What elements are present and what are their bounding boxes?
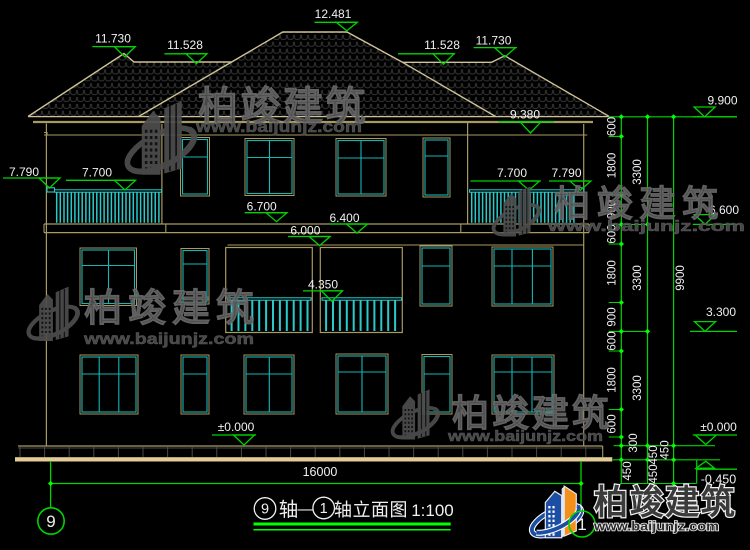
svg-text:900: 900: [607, 307, 619, 326]
svg-text:600: 600: [607, 331, 619, 350]
svg-text:www.baijunjz.com: www.baijunjz.com: [447, 428, 603, 445]
svg-text:11.730: 11.730: [95, 32, 131, 46]
svg-text:筑: 筑: [701, 484, 735, 522]
svg-text:3.300: 3.300: [706, 305, 736, 319]
svg-text:450: 450: [622, 461, 634, 480]
svg-text:轴: 轴: [279, 499, 299, 521]
svg-text:柏: 柏: [594, 484, 628, 522]
svg-text:竣: 竣: [630, 483, 664, 522]
svg-text:9.900: 9.900: [707, 94, 737, 108]
svg-text:7.790: 7.790: [9, 165, 39, 179]
svg-text:±0.000: ±0.000: [218, 420, 255, 434]
svg-text:6.700: 6.700: [247, 200, 277, 214]
svg-text:www.baijunjz.com: www.baijunjz.com: [195, 118, 362, 136]
svg-text:筑: 筑: [216, 288, 254, 330]
svg-text:9.380: 9.380: [510, 108, 540, 122]
svg-text:4.350: 4.350: [308, 278, 338, 292]
svg-text:450: 450: [660, 440, 672, 459]
svg-text:12.481: 12.481: [315, 7, 352, 21]
svg-text:6.000: 6.000: [290, 224, 320, 238]
svg-text:16000: 16000: [303, 465, 338, 479]
svg-text:1: 1: [577, 515, 586, 534]
svg-text:www.baijunjz.com: www.baijunjz.com: [546, 218, 745, 235]
svg-text:11.730: 11.730: [476, 34, 512, 48]
svg-text:300: 300: [628, 433, 640, 452]
svg-text:1: 1: [320, 501, 328, 517]
svg-text:1800: 1800: [607, 260, 619, 286]
svg-text:3300: 3300: [632, 159, 644, 185]
svg-text:450: 450: [648, 464, 660, 483]
svg-text:轴立面图: 轴立面图: [334, 500, 408, 520]
svg-text:3300: 3300: [632, 265, 644, 291]
svg-text:9: 9: [261, 502, 269, 518]
svg-text:www.baijunjz.com: www.baijunjz.com: [83, 331, 254, 348]
svg-text:—: —: [298, 501, 314, 518]
svg-text:7.700: 7.700: [82, 166, 112, 180]
svg-text:1800: 1800: [607, 367, 619, 393]
svg-text:±0.000: ±0.000: [700, 420, 737, 434]
svg-text:7.700: 7.700: [497, 166, 527, 180]
svg-text:1:100: 1:100: [411, 501, 454, 520]
svg-text:3300: 3300: [632, 375, 644, 401]
svg-text:www.baijunjz.com: www.baijunjz.com: [593, 519, 719, 534]
svg-text:450: 450: [648, 445, 660, 464]
svg-text:600: 600: [607, 117, 619, 136]
svg-text:11.528: 11.528: [167, 38, 203, 52]
svg-text:9: 9: [46, 512, 55, 531]
svg-text:竣: 竣: [128, 288, 166, 330]
svg-text:6.400: 6.400: [329, 211, 359, 225]
svg-text:9900: 9900: [675, 265, 687, 291]
svg-text:1800: 1800: [607, 153, 619, 179]
svg-text:柏: 柏: [84, 288, 122, 330]
svg-text:建: 建: [172, 288, 210, 330]
svg-text:建: 建: [665, 484, 699, 522]
svg-text:11.528: 11.528: [424, 38, 460, 52]
svg-text:7.790: 7.790: [551, 166, 581, 180]
